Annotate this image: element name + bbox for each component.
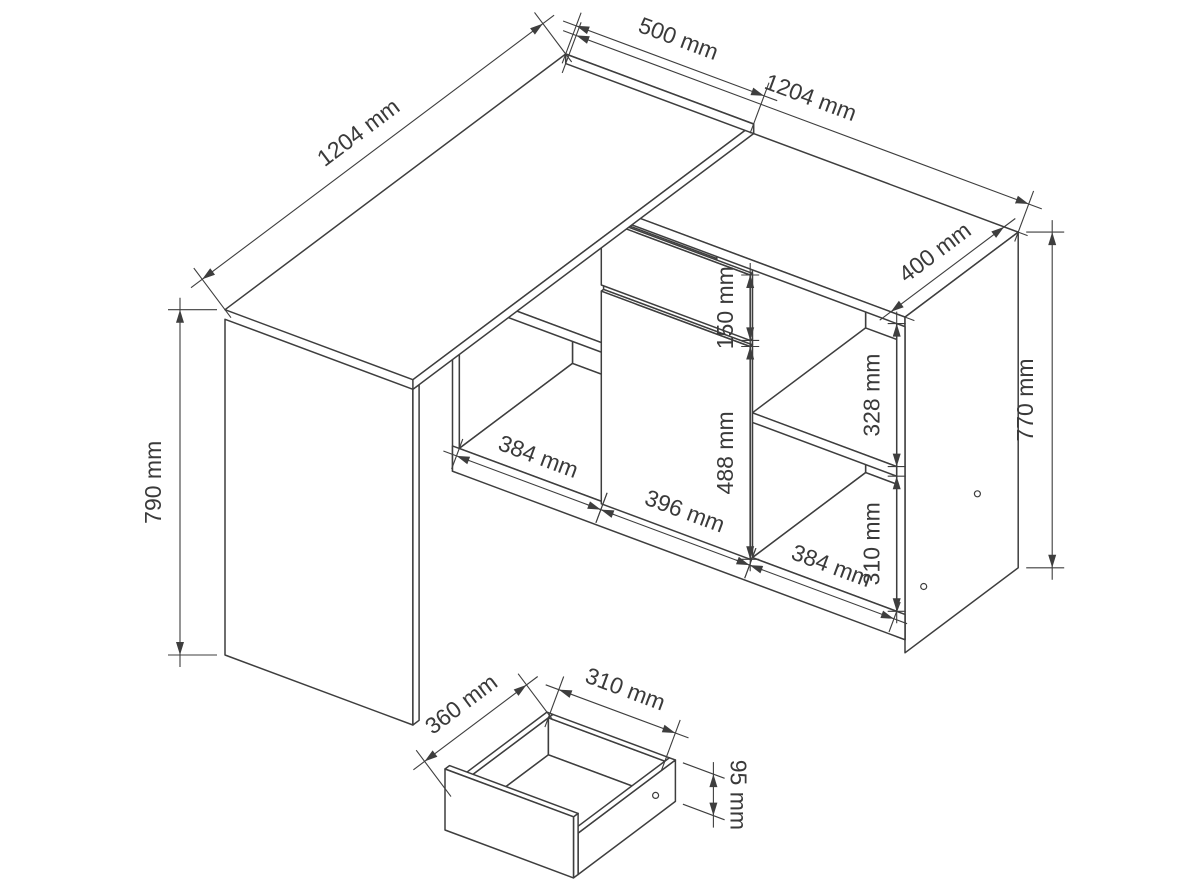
technical-drawing-canvas: 1204 mm500 mm1204 mm400 mm384 mm396 mm38… — [0, 0, 1200, 887]
cam-hole — [974, 491, 980, 497]
dimension-label-desk_length: 1204 mm — [312, 93, 404, 171]
dimension-arrow — [202, 268, 215, 279]
dimension-label-drawer_height: 95 mm — [725, 760, 751, 830]
cam-hole — [921, 584, 927, 590]
dimension-label-desk_depth: 500 mm — [635, 12, 722, 65]
dimension-arrow — [1015, 196, 1029, 204]
dimension-arrow — [709, 803, 717, 816]
dimension-arrow — [662, 725, 676, 733]
dimension-label-cabinet_length: 1204 mm — [761, 68, 860, 126]
dimension-line — [518, 674, 553, 720]
dimension-label-upper_shelf_space: 328 mm — [859, 354, 885, 437]
dimension-arrow — [425, 750, 438, 761]
dimension-arrow — [176, 642, 184, 655]
dimension-arrow — [709, 774, 717, 787]
dimension-arrow — [559, 690, 573, 698]
dimension-label-top_drawer_front_height: 150 mm — [712, 266, 738, 349]
dimension-label-door_height: 488 mm — [712, 411, 738, 494]
dimension-line — [535, 12, 572, 62]
dimension-line — [683, 804, 725, 820]
dimension-label-cabinet_height: 770 mm — [1012, 358, 1038, 441]
dimension-arrow — [530, 24, 543, 35]
dimension-line — [683, 763, 725, 779]
corner-desk-technical-drawing: 1204 mm500 mm1204 mm400 mm384 mm396 mm38… — [0, 0, 1200, 887]
dimension-label-lower_shelf_space: 310 mm — [859, 502, 885, 585]
drawer-box-outline — [445, 712, 675, 878]
dimension-arrow — [1048, 232, 1056, 245]
dimension-label-desk_height: 790 mm — [140, 441, 166, 524]
dimension-label-drawer_width: 310 mm — [582, 662, 669, 715]
cam-hole — [653, 792, 659, 798]
dimension-arrow — [1048, 555, 1056, 568]
desk-side-panel-front-edge — [413, 385, 419, 725]
desk-side-panel — [225, 319, 413, 725]
dimension-arrow — [576, 35, 590, 43]
dimension-arrow — [514, 685, 527, 696]
dimension-arrow — [176, 310, 184, 323]
dimension-label-drawer_depth: 360 mm — [420, 669, 502, 740]
